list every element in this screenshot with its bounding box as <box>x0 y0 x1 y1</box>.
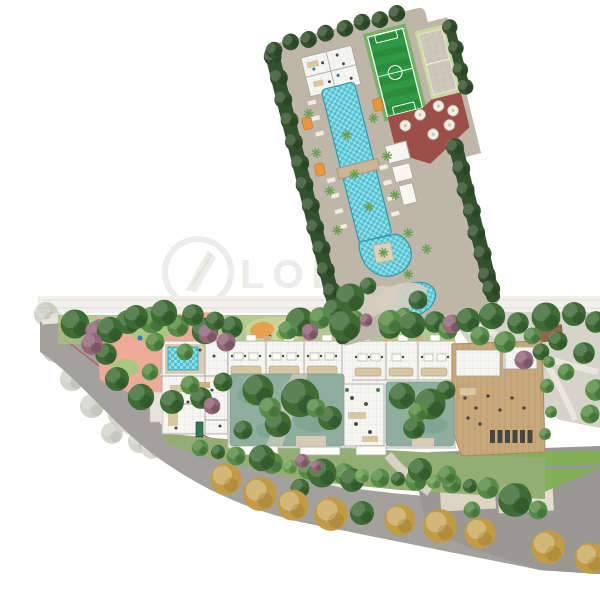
play-equipment <box>138 336 143 341</box>
plant <box>376 388 380 392</box>
site-plan: LOB <box>0 0 600 600</box>
gym-mat <box>460 388 476 395</box>
courtyard-garden-1 <box>230 374 344 446</box>
plant <box>345 388 349 392</box>
courtyard-garden-2 <box>386 380 456 446</box>
sofa <box>168 412 178 426</box>
courtyard-deck <box>296 436 326 446</box>
pool-table <box>196 422 203 437</box>
site-plan-canvas: LOB <box>0 0 600 600</box>
central-lounge <box>344 384 384 446</box>
courtyard-deck <box>412 438 434 446</box>
